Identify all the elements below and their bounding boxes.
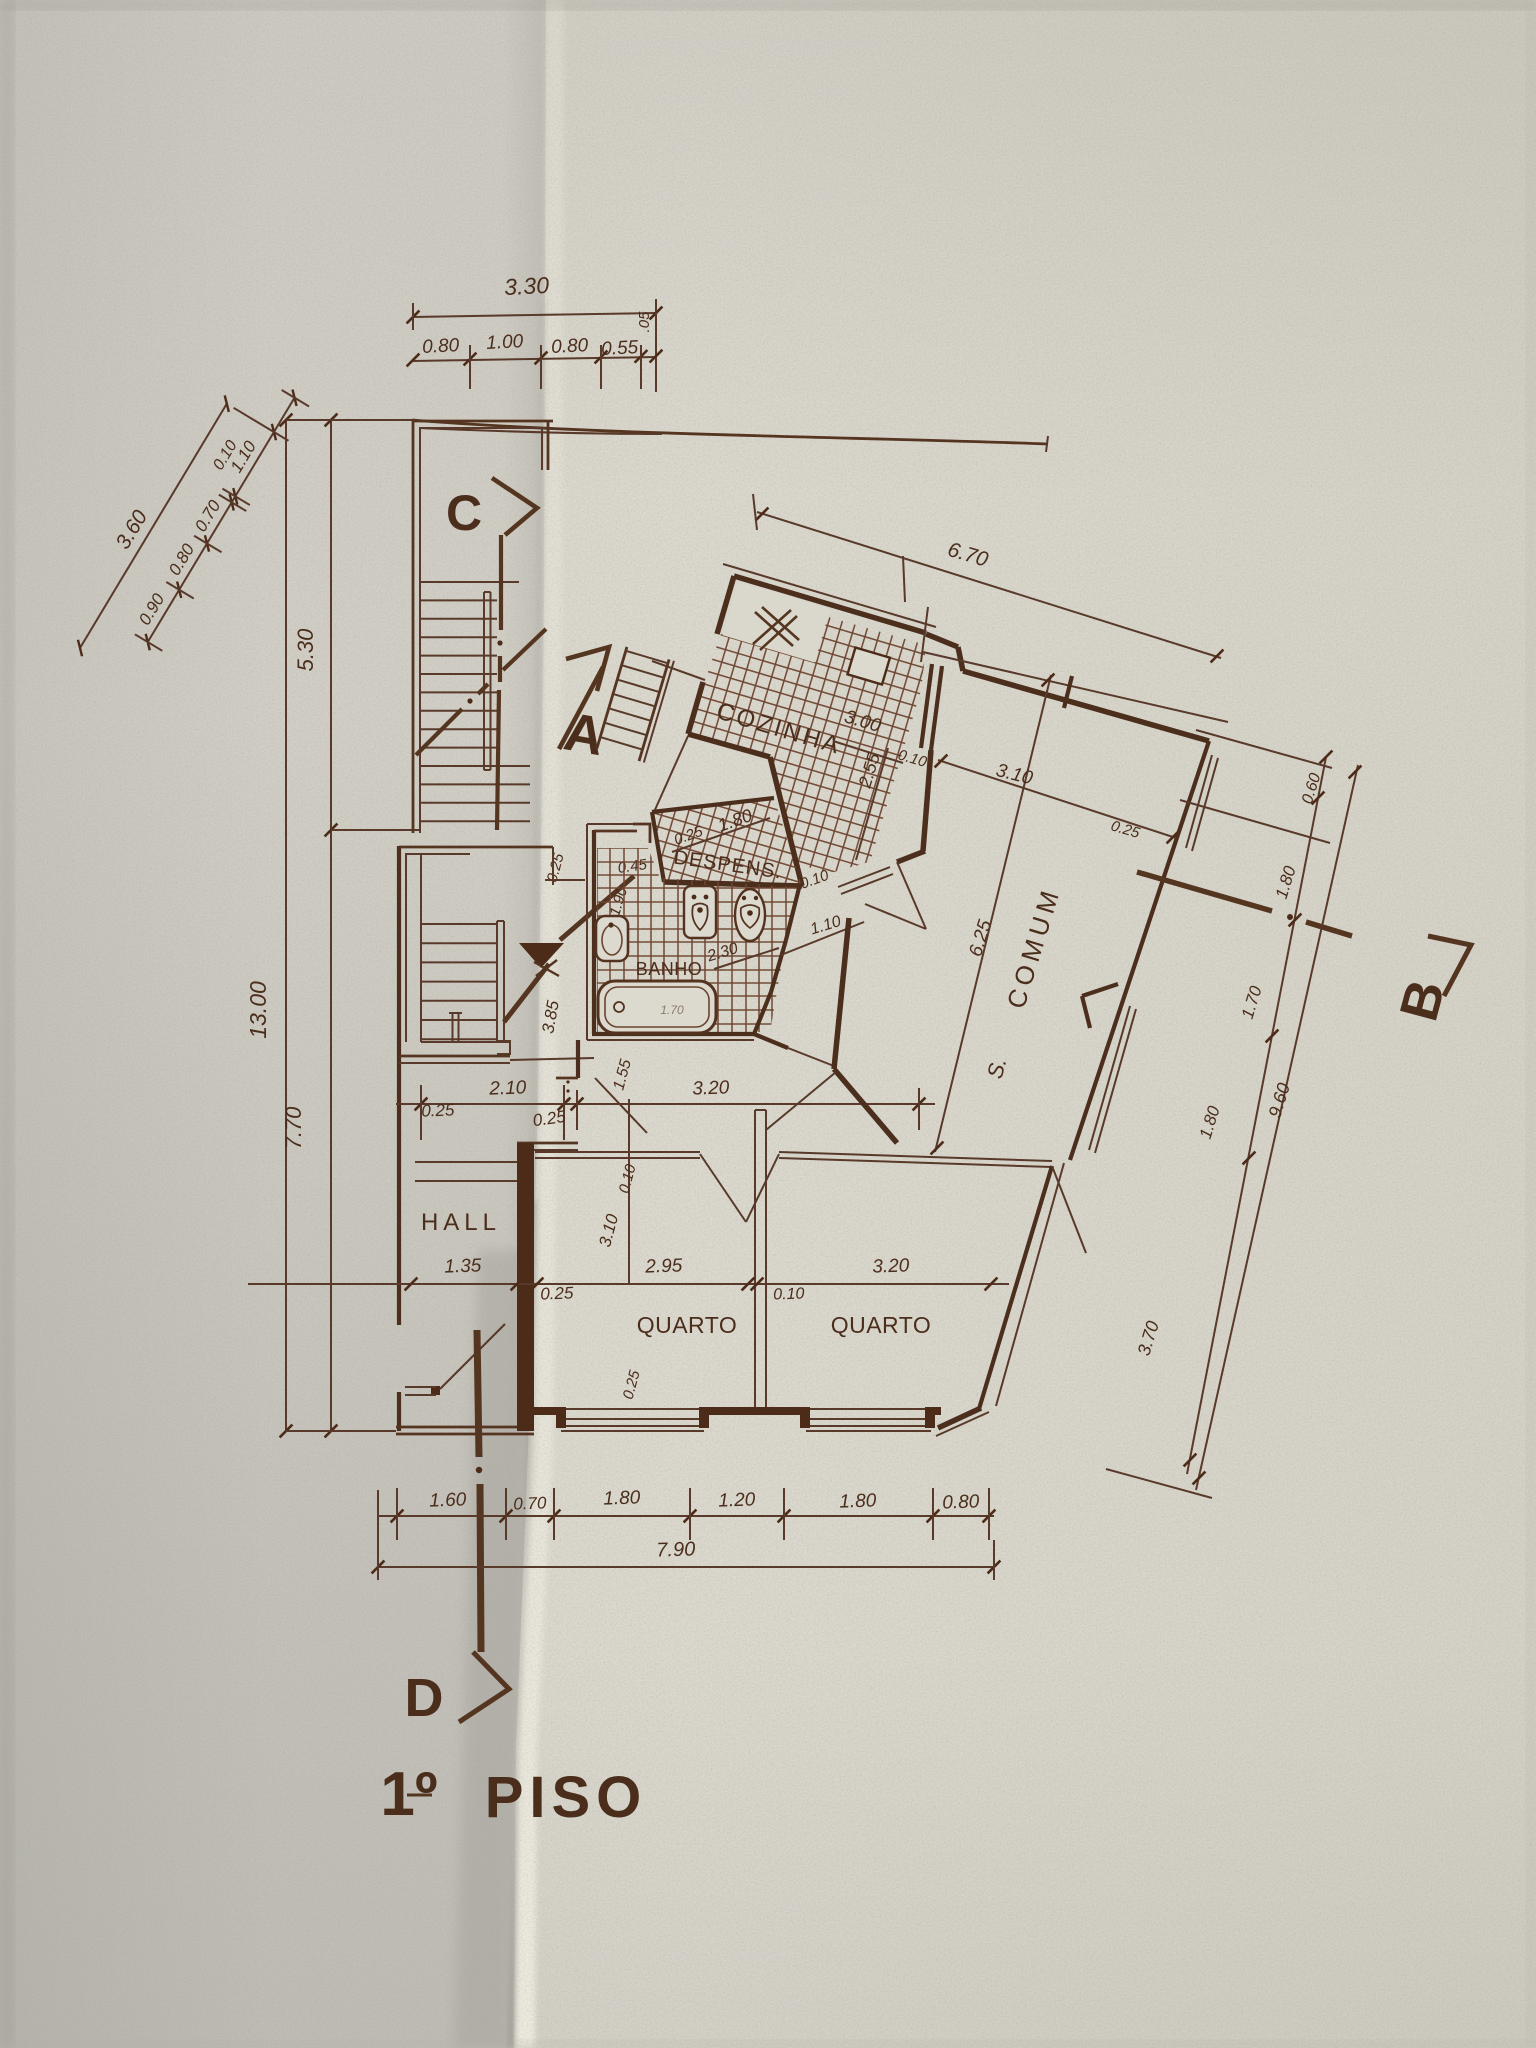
svg-text:1.70: 1.70 [660, 1003, 684, 1017]
svg-text:0.80: 0.80 [942, 1491, 980, 1513]
svg-text:1.80: 1.80 [603, 1487, 641, 1509]
svg-text:1.00: 1.00 [486, 331, 524, 354]
svg-text:0.25: 0.25 [540, 1283, 574, 1303]
svg-text:1.60: 1.60 [429, 1489, 467, 1511]
svg-text:QUARTO: QUARTO [831, 1312, 932, 1338]
svg-text:3.20: 3.20 [692, 1077, 730, 1099]
svg-text:1.80: 1.80 [839, 1490, 877, 1512]
svg-text:PISO: PISO [485, 1765, 648, 1830]
svg-text:HALL: HALL [421, 1209, 501, 1236]
svg-text:3.20: 3.20 [872, 1255, 910, 1277]
svg-text:.05: .05 [636, 311, 653, 333]
svg-text:7.70: 7.70 [281, 1106, 306, 1150]
svg-text:D: D [405, 1668, 444, 1728]
svg-text:0.70: 0.70 [513, 1493, 547, 1513]
svg-text:C: C [446, 485, 482, 541]
svg-text:QUARTO: QUARTO [637, 1312, 738, 1338]
svg-text:0.80: 0.80 [551, 335, 589, 358]
svg-text:2.10: 2.10 [488, 1077, 527, 1099]
svg-text:0.10: 0.10 [773, 1285, 805, 1303]
svg-text:1.35: 1.35 [444, 1255, 482, 1277]
svg-text:3.30: 3.30 [504, 272, 550, 300]
svg-text:7.90: 7.90 [656, 1538, 696, 1561]
svg-text:13.00: 13.00 [245, 981, 271, 1039]
svg-text:0.25: 0.25 [421, 1100, 455, 1120]
svg-text:2.95: 2.95 [644, 1255, 683, 1277]
svg-text:0.55: 0.55 [601, 337, 639, 360]
svg-text:5.30: 5.30 [293, 628, 318, 672]
svg-text:0.80: 0.80 [422, 335, 460, 358]
svg-text:BANHO: BANHO [636, 959, 703, 979]
svg-text:1.20: 1.20 [718, 1489, 756, 1511]
